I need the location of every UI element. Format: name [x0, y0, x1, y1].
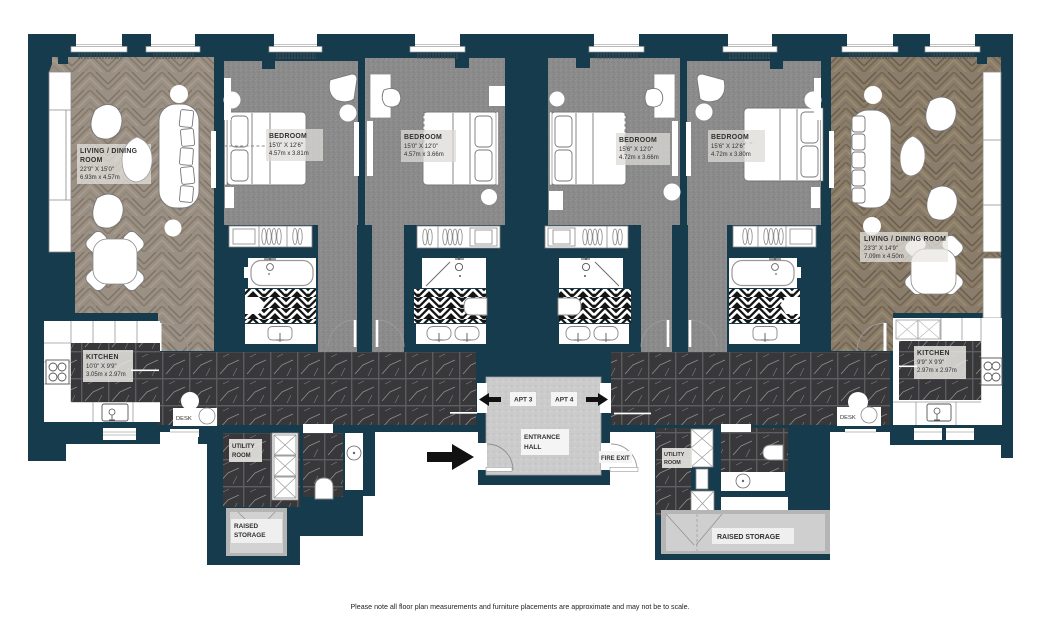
svg-text:BEDROOM: BEDROOM: [711, 134, 749, 141]
svg-text:RAISED: RAISED: [234, 523, 259, 530]
svg-text:15'0" X 12'6": 15'0" X 12'6": [269, 143, 303, 149]
svg-text:Please note all floor plan mea: Please note all floor plan measurements …: [350, 603, 689, 611]
svg-text:UTILITY: UTILITY: [232, 444, 255, 450]
svg-text:23'3" X 14'9": 23'3" X 14'9": [864, 246, 898, 252]
svg-text:ROOM: ROOM: [664, 460, 681, 466]
svg-text:4.72m x 3.66m: 4.72m x 3.66m: [619, 155, 659, 161]
svg-text:DESK: DESK: [840, 415, 856, 421]
svg-text:ROOM: ROOM: [80, 157, 103, 164]
svg-text:KITCHEN: KITCHEN: [917, 350, 950, 357]
svg-text:RAISED STORAGE: RAISED STORAGE: [717, 534, 780, 541]
svg-text:15'6" X 12'0": 15'6" X 12'0": [619, 147, 653, 153]
svg-text:HALL: HALL: [524, 444, 541, 451]
svg-text:KITCHEN: KITCHEN: [86, 354, 119, 361]
svg-text:BEDROOM: BEDROOM: [619, 137, 657, 144]
svg-text:LIVING / DINING ROOM: LIVING / DINING ROOM: [864, 236, 946, 243]
svg-text:15'0" X 12'0": 15'0" X 12'0": [404, 144, 438, 150]
svg-text:BEDROOM: BEDROOM: [269, 133, 307, 140]
svg-text:BEDROOM: BEDROOM: [404, 134, 442, 141]
svg-text:4.57m x 3.66m: 4.57m x 3.66m: [404, 152, 444, 158]
svg-text:10'0" X 9'9": 10'0" X 9'9": [86, 364, 117, 370]
svg-text:6.93m x 4.57m: 6.93m x 4.57m: [80, 175, 120, 181]
svg-text:22'9" X 15'0": 22'9" X 15'0": [80, 167, 114, 173]
svg-text:2.97m x 2.97m: 2.97m x 2.97m: [917, 368, 957, 374]
svg-text:7.09m x 4.50m: 7.09m x 4.50m: [864, 254, 904, 260]
svg-text:APT 3: APT 3: [514, 397, 533, 404]
svg-text:UTILITY: UTILITY: [664, 452, 685, 458]
svg-text:ENTRANCE: ENTRANCE: [524, 434, 561, 441]
svg-text:4.72m x 3.80m: 4.72m x 3.80m: [711, 152, 751, 158]
svg-text:FIRE EXIT: FIRE EXIT: [601, 456, 630, 462]
svg-text:15'6" X 12'6": 15'6" X 12'6": [711, 144, 745, 150]
svg-text:4.57m x 3.81m: 4.57m x 3.81m: [269, 151, 309, 157]
svg-text:DESK: DESK: [176, 416, 192, 422]
svg-text:LIVING / DINING: LIVING / DINING: [80, 148, 137, 155]
svg-text:9'9" X 9'9": 9'9" X 9'9": [917, 360, 944, 366]
svg-text:STORAGE: STORAGE: [234, 532, 266, 539]
svg-text:ROOM: ROOM: [232, 453, 251, 459]
svg-text:APT 4: APT 4: [555, 397, 574, 404]
svg-text:3.05m x 2.97m: 3.05m x 2.97m: [86, 372, 126, 378]
